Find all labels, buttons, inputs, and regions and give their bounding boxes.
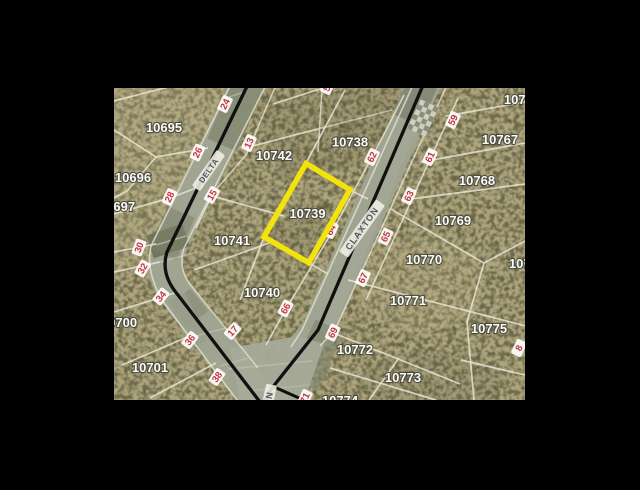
svg-text:10696: 10696 [115, 170, 151, 185]
svg-text:10741: 10741 [214, 233, 250, 248]
svg-text:10769: 10769 [435, 213, 471, 228]
svg-text:10773: 10773 [385, 370, 421, 385]
svg-text:10701: 10701 [132, 360, 168, 375]
svg-text:10742: 10742 [256, 148, 292, 163]
svg-text:10768: 10768 [459, 173, 495, 188]
svg-text:10739: 10739 [289, 206, 325, 221]
svg-text:10695: 10695 [146, 120, 182, 135]
svg-text:10775: 10775 [471, 321, 507, 336]
svg-text:10767: 10767 [482, 132, 518, 147]
svg-text:10770: 10770 [406, 252, 442, 267]
svg-text:10772: 10772 [337, 342, 373, 357]
svg-text:10738: 10738 [332, 135, 368, 150]
svg-text:10771: 10771 [390, 293, 426, 308]
svg-text:10740: 10740 [244, 285, 280, 300]
